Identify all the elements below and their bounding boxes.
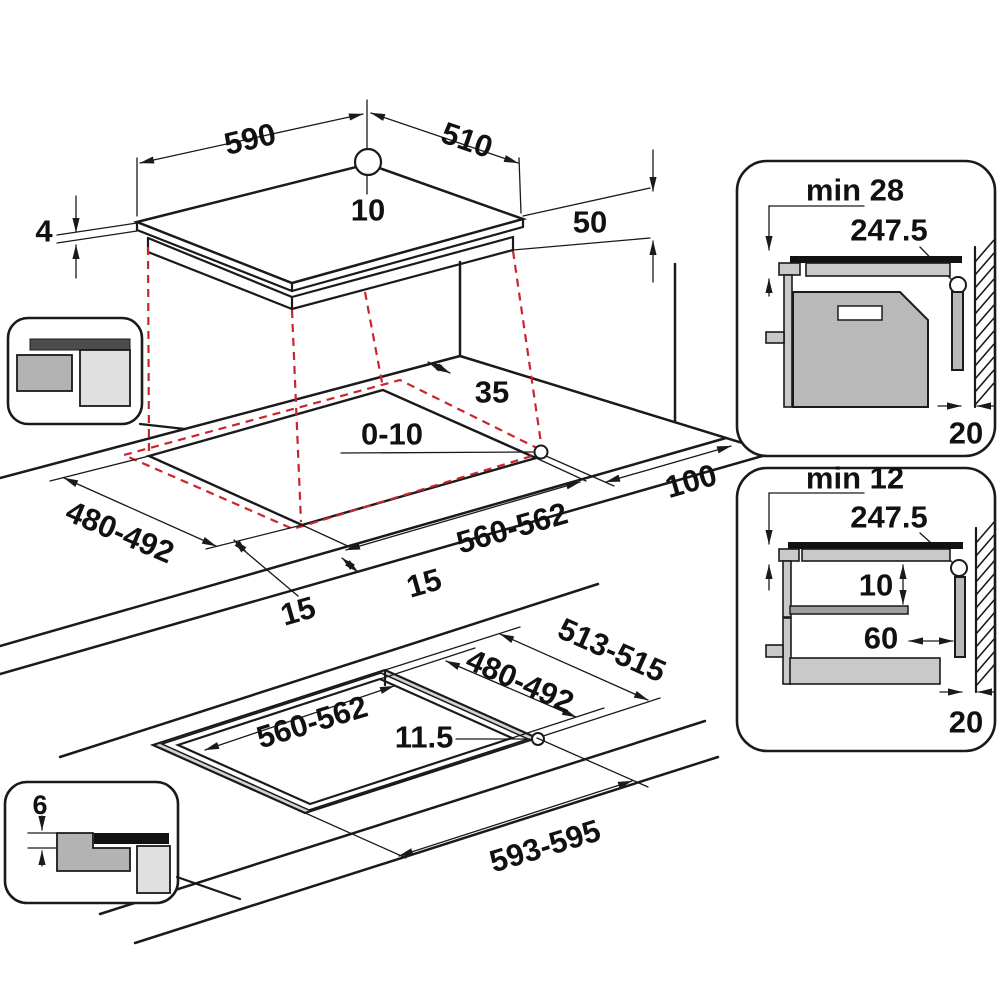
dim-cutout-depth: 480-492 (61, 494, 179, 571)
shelf-board (790, 606, 908, 614)
dim-ledge: 11.5 (395, 720, 454, 755)
dim-35: 35 (428, 362, 509, 410)
worktop-section (806, 263, 950, 276)
hole-marker-circle (950, 277, 966, 293)
dim-50: 50 (513, 150, 653, 282)
section-over-shelf-panel: min 12 247.5 10 60 (737, 461, 995, 752)
dim-side-gap: 0-10 (361, 417, 423, 452)
oven-vent (838, 306, 882, 320)
dim-min-clearance-oven: min 28 (806, 173, 904, 208)
dim-flush-cut-depth: 480-492 (461, 642, 579, 720)
dim-hole-offset-shelf: 247.5 (850, 500, 928, 535)
worktop-block-icon (80, 350, 130, 406)
dim-hob-depth: 510 (437, 115, 497, 165)
dim-glass-thickness: 4 (35, 214, 53, 249)
worktop-section (802, 549, 950, 561)
center-reference-circle (355, 149, 381, 175)
dim-flush-outer-depth: 513-515 (553, 611, 671, 689)
dim-hole-offset-oven: 247.5 (850, 213, 928, 248)
dim-overhang-front: 15 (403, 561, 446, 604)
dim-overhang-side: 15 (277, 589, 320, 632)
oven-block-icon (17, 355, 72, 391)
dim-shelf-gap: 10 (859, 568, 893, 603)
rear-spacer (952, 292, 963, 370)
hob-profile-icon (30, 339, 130, 350)
surface-mount-icon-box (8, 318, 185, 429)
dim-body-height: 50 (573, 205, 607, 240)
dim-min-clearance-shelf: min 12 (806, 461, 904, 496)
icon-pointer-line (140, 424, 185, 429)
left-clamp (779, 549, 799, 561)
flush-mount-icon-box: 6 (5, 782, 240, 903)
cabinet-rail (766, 645, 783, 657)
dim-shelf-inset: 60 (864, 621, 898, 656)
left-clamp (779, 263, 800, 275)
dim-right-clearance: 100 (661, 457, 720, 505)
cabinet-side (784, 275, 792, 407)
dim-wall-gap-oven: 20 (949, 416, 983, 451)
worktop-cutout-view: 0-10 35 100 480-492 560-562 15 (0, 247, 775, 674)
rear-spacer (955, 577, 965, 657)
hob-glass-top (137, 164, 523, 283)
dim-wall-gap-shelf: 20 (949, 705, 983, 740)
hole-marker-circle (951, 560, 967, 576)
hob-glass-section (788, 542, 963, 549)
cutout-outline (149, 390, 536, 525)
dim-recess-depth: 6 (32, 790, 47, 820)
dim-rear-gap: 35 (475, 375, 509, 410)
dim-15-front: 15 (342, 558, 445, 605)
hob-installation-diagram: 590 510 10 4 50 (0, 0, 1000, 1000)
hob-glass-icon (94, 833, 169, 844)
installation-diagram-page: 590 510 10 4 50 (0, 0, 1000, 1000)
cabinet-block-icon (137, 846, 170, 893)
hob-glass-section (790, 256, 962, 263)
section-over-oven-panel: min 28 247.5 20 (737, 161, 995, 456)
dim-cutout-width: 560-562 (452, 495, 571, 560)
drawer-body (790, 658, 940, 684)
dim-center-mark: 10 (351, 193, 385, 228)
cabinet-rail (766, 332, 784, 343)
hob-isometric-view: 590 510 10 4 50 (35, 100, 653, 309)
dim-hob-width: 590 (221, 116, 279, 162)
dim-4: 4 (35, 196, 137, 278)
